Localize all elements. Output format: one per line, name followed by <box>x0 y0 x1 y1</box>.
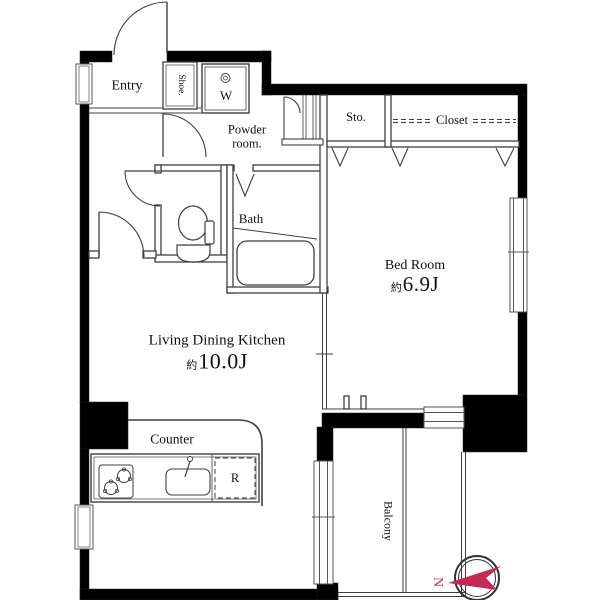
balcony-boundary <box>338 428 466 597</box>
storage-label: Sto. <box>346 111 366 125</box>
entry-label: Entry <box>111 78 142 93</box>
bifold-door-icon <box>236 148 514 196</box>
counter-label: Counter <box>150 433 194 448</box>
sliding-partition <box>316 293 424 409</box>
powder-room-label: Powder room. <box>228 123 266 151</box>
compass-north-label: N <box>430 577 445 587</box>
ldk-balcony-window <box>312 461 335 584</box>
toilet-door <box>125 171 160 206</box>
toilet-icon <box>177 206 214 262</box>
kitchen-window <box>75 505 93 549</box>
bedroom-side-window <box>508 198 529 312</box>
hall-door <box>163 113 206 157</box>
closet-label: Closet <box>433 114 471 128</box>
fridge-label: R <box>231 472 239 486</box>
stove-icon <box>99 465 133 498</box>
entry-window <box>76 64 92 104</box>
ldk-door <box>99 212 144 257</box>
entry-door <box>114 2 167 55</box>
shoe-cabinet-label: Shoe. <box>176 74 186 95</box>
wall-layer <box>80 51 527 600</box>
washer-label: W <box>220 89 232 103</box>
bedroom-label: Bed Room 約6.9J <box>385 258 445 296</box>
bath-label: Bath <box>239 212 264 226</box>
floorplan-drawing: N <box>0 0 600 600</box>
bedroom-balcony-window <box>424 407 464 428</box>
bedroom-storage-door <box>282 95 323 145</box>
balcony-label: Balcony <box>381 501 394 541</box>
ldk-label: Living Dining Kitchen 約10.0J <box>149 333 286 374</box>
bathtub-icon <box>233 228 317 285</box>
floor-plan: N Entry Shoe. W Powder room. Bath Sto. C… <box>0 0 600 600</box>
